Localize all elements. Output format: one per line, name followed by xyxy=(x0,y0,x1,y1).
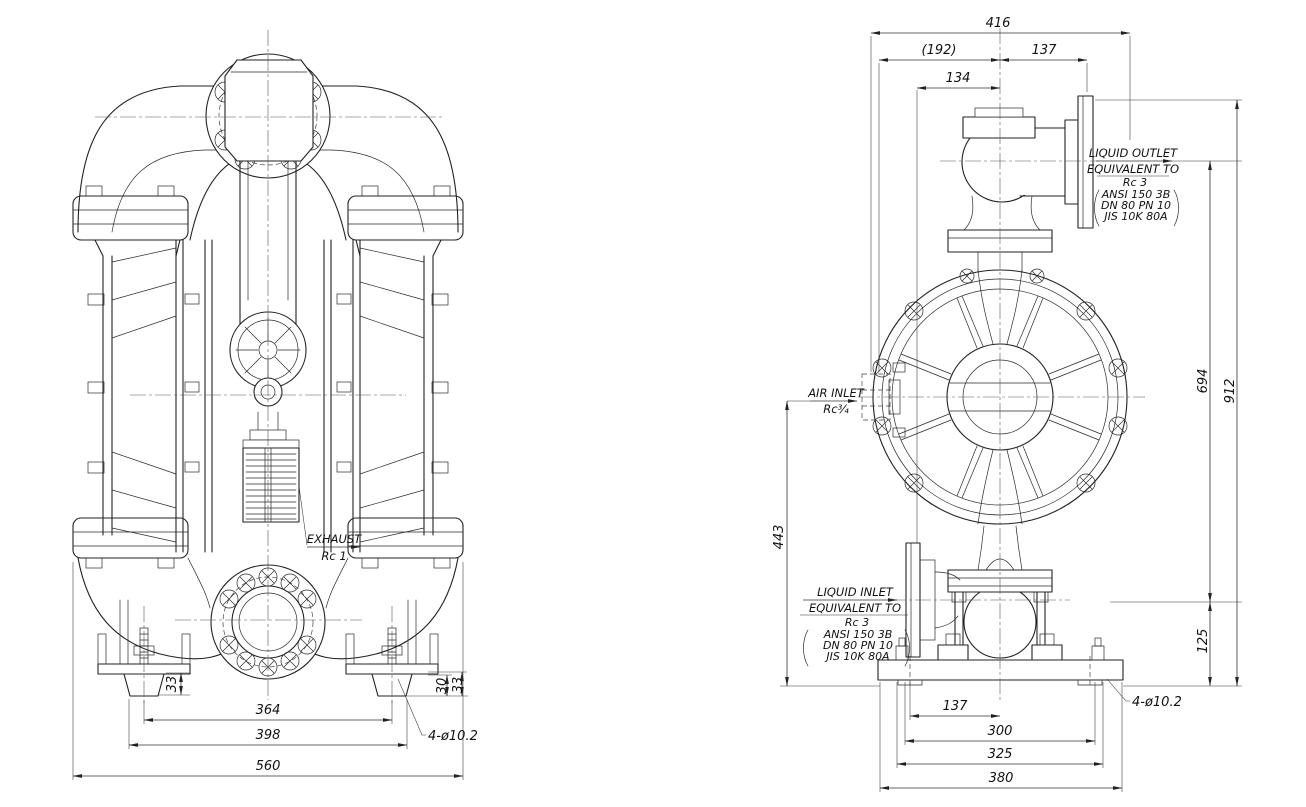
air-inlet-callout: AIR INLET Rc¾ xyxy=(787,386,865,416)
dim-364: 364 xyxy=(256,703,281,718)
dim-30-right: 30 xyxy=(435,678,450,695)
outlet-line6: JIS 10K 80A xyxy=(1102,210,1167,223)
inlet-line1: LIQUID INLET xyxy=(817,585,894,599)
outlet-line2: EQUIVALENT TO xyxy=(1087,162,1179,176)
pump-technical-drawing: EXHAUST Rc 1 33 30 33 364 398 560 4-ø10.… xyxy=(0,0,1306,807)
front-air-valve xyxy=(230,161,306,448)
inlet-line2: EQUIVALENT TO xyxy=(809,601,901,615)
dim-125: 125 xyxy=(1196,629,1211,654)
dim-380: 380 xyxy=(989,771,1014,786)
top-port-block xyxy=(225,60,313,161)
side-top-dimensions: 416 (192) 137 134 xyxy=(871,16,1130,543)
dim-137-top: 137 xyxy=(1032,43,1058,58)
side-inlet-assembly xyxy=(906,526,1062,660)
side-bottom-dimensions: 137 300 325 380 4-ø10.2 xyxy=(880,679,1182,792)
dim-560: 560 xyxy=(256,759,281,774)
dim-694: 694 xyxy=(1196,369,1211,394)
exhaust-label: EXHAUST xyxy=(307,532,362,546)
front-holes-label: 4-ø10.2 xyxy=(428,729,478,744)
dim-416: 416 xyxy=(986,16,1011,31)
outlet-line1: LIQUID OUTLET xyxy=(1089,146,1178,160)
drawing-sheet: EXHAUST Rc 1 33 30 33 364 398 560 4-ø10.… xyxy=(0,0,1306,807)
dim-398: 398 xyxy=(256,728,281,743)
dim-912: 912 xyxy=(1223,379,1238,404)
air-inlet-size: Rc¾ xyxy=(823,402,849,416)
dim-192: (192) xyxy=(922,43,957,58)
front-muffler xyxy=(243,448,299,522)
dim-325: 325 xyxy=(988,747,1013,762)
exhaust-size-label: Rc 1 xyxy=(321,549,346,563)
dim-134: 134 xyxy=(946,71,971,86)
dim-443: 443 xyxy=(772,525,787,550)
dim-300: 300 xyxy=(988,724,1013,739)
dim-137-base: 137 xyxy=(943,699,969,714)
side-holes-label: 4-ø10.2 xyxy=(1132,695,1182,710)
liquid-inlet-callout: LIQUID INLET EQUIVALENT TO Rc 3 ANSI 150… xyxy=(800,585,910,666)
side-outlet-assembly xyxy=(948,96,1093,283)
inlet-line6: JIS 10K 80A xyxy=(824,650,889,663)
liquid-outlet-callout: LIQUID OUTLET EQUIVALENT TO Rc 3 ANSI 15… xyxy=(1087,146,1242,226)
side-view: LIQUID OUTLET EQUIVALENT TO Rc 3 ANSI 15… xyxy=(772,16,1242,792)
front-view: EXHAUST Rc 1 33 30 33 364 398 560 4-ø10.… xyxy=(73,30,478,780)
dim-33-left: 33 xyxy=(165,676,180,693)
dim-33-right: 33 xyxy=(451,677,466,694)
air-inlet-label: AIR INLET xyxy=(807,386,865,400)
